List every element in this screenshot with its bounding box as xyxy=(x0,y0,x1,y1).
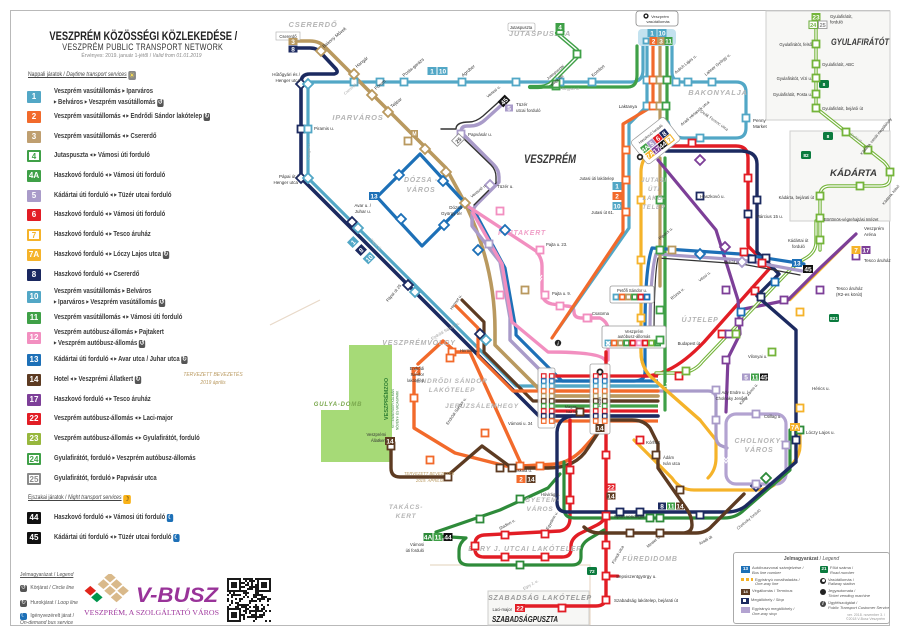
svg-text:Endrődi: Endrődi xyxy=(410,366,425,371)
svg-text:5: 5 xyxy=(507,106,511,113)
svg-text:CHOLNOKY-: CHOLNOKY- xyxy=(734,438,783,445)
svg-text:5: 5 xyxy=(744,375,748,382)
svg-text:Börtönös-végrehajtási Intézet: Börtönös-végrehajtási Intézet xyxy=(824,217,879,222)
svg-text:Gyulafirátót, Posta u.: Gyulafirátót, Posta u. xyxy=(773,92,812,97)
svg-text:22: 22 xyxy=(607,485,615,492)
svg-text:TELEP: TELEP xyxy=(642,205,666,211)
svg-text:3: 3 xyxy=(291,39,295,46)
svg-text:Papvásár u.: Papvásár u. xyxy=(468,132,492,137)
svg-text:Market: Market xyxy=(753,124,768,129)
svg-text:Egry J. u.: Egry J. u. xyxy=(522,578,539,591)
svg-text:Vámosi: Vámosi xyxy=(410,542,424,547)
svg-text:45: 45 xyxy=(804,267,812,274)
svg-text:Veszprém: Veszprém xyxy=(864,226,884,231)
svg-text:7: 7 xyxy=(854,248,858,255)
svg-text:Egyetem u.: Egyetem u. xyxy=(545,510,559,530)
svg-text:Gyulafirátót, ABC: Gyulafirátót, ABC xyxy=(822,62,854,67)
svg-text:Fórum: Fórum xyxy=(373,78,386,90)
svg-text:821: 821 xyxy=(830,316,838,322)
svg-text:úti forduló: úti forduló xyxy=(406,548,425,553)
svg-text:Henger u.: Henger u. xyxy=(307,143,311,160)
svg-text:V-BUSZ: V-BUSZ xyxy=(136,584,219,607)
svg-text:VÁROS: VÁROS xyxy=(745,445,774,454)
svg-text:ház tér: ház tér xyxy=(566,409,579,414)
svg-text:14: 14 xyxy=(607,494,615,501)
svg-text:BAKONYALJA: BAKONYALJA xyxy=(688,88,748,97)
svg-text:3: 3 xyxy=(659,39,663,46)
svg-text:autóbusz-állomás: autóbusz-állomás xyxy=(618,334,651,339)
svg-text:2: 2 xyxy=(652,39,656,46)
svg-text:Penny: Penny xyxy=(753,118,767,123)
svg-text:ÚJTELEP: ÚJTELEP xyxy=(681,315,718,324)
svg-text:1: 1 xyxy=(430,69,434,76)
svg-text:1: 1 xyxy=(650,31,654,38)
svg-text:11: 11 xyxy=(752,375,759,382)
svg-text:22: 22 xyxy=(516,606,524,613)
svg-text:Jutaspuszta: Jutaspuszta xyxy=(510,25,533,30)
svg-text:GULYA-DOMB: GULYA-DOMB xyxy=(314,402,362,408)
svg-text:Lahner György u.: Lahner György u. xyxy=(703,52,731,77)
svg-text:Hérics u.: Hérics u. xyxy=(812,386,830,391)
svg-text:Henger utca: Henger utca xyxy=(273,180,298,185)
svg-text:Stadion u.: Stadion u. xyxy=(498,518,516,531)
svg-text:Házgyári út: Házgyári út xyxy=(560,87,580,91)
svg-text:11: 11 xyxy=(668,504,675,511)
svg-text:2019. ÁPRILIS: 2019. ÁPRILIS xyxy=(415,478,444,483)
svg-text:Pajta u. 23.: Pajta u. 23. xyxy=(546,242,567,247)
svg-text:1: 1 xyxy=(615,184,619,191)
svg-text:VESZPRÉM, A SZOLGÁLTATÓ VÁROS: VESZPRÉM, A SZOLGÁLTATÓ VÁROS xyxy=(84,607,219,617)
svg-text:VÁROS: VÁROS xyxy=(526,504,553,513)
svg-text:Csillag u.: Csillag u. xyxy=(764,414,781,419)
svg-text:4A: 4A xyxy=(424,535,433,542)
svg-text:SZABADSÁG LAKÓTELEP: SZABADSÁG LAKÓTELEP xyxy=(488,593,592,602)
svg-text:Hűtőgyári és /: Hűtőgyári és / xyxy=(272,72,301,77)
svg-text:M: M xyxy=(412,132,416,138)
svg-text:Kádárta, bejárati út: Kádárta, bejárati út xyxy=(779,195,815,200)
svg-text:Csatorna: Csatorna xyxy=(592,311,610,316)
svg-text:György tér: György tér xyxy=(441,211,463,216)
svg-text:EGRY J. UTCAI LAKÓTELEP: EGRY J. UTCAI LAKÓTELEP xyxy=(468,544,581,553)
svg-text:Vámosi u. 34: Vámosi u. 34 xyxy=(508,421,533,426)
svg-text:Aradi út: Aradi út xyxy=(698,534,714,546)
svg-text:Mester u.: Mester u. xyxy=(645,534,661,549)
svg-text:VÁROS: VÁROS xyxy=(407,185,436,194)
svg-text:CSERERDŐ: CSERERDŐ xyxy=(289,20,338,29)
svg-text:10: 10 xyxy=(439,69,447,76)
svg-text:KÁDÁRTA: KÁDÁRTA xyxy=(830,168,877,179)
svg-text:Sándor: Sándor xyxy=(410,372,424,377)
svg-text:Petőfi Sándor u.: Petőfi Sándor u. xyxy=(617,288,647,293)
svg-text:14: 14 xyxy=(596,426,604,433)
svg-text:ÚTI: ÚTI xyxy=(648,186,660,193)
svg-text:8: 8 xyxy=(827,134,830,140)
svg-text:Órhíd u.: Órhíd u. xyxy=(724,259,740,265)
svg-text:7A: 7A xyxy=(791,425,800,432)
svg-text:lakótelep: lakótelep xyxy=(407,378,424,383)
svg-text:10: 10 xyxy=(613,204,621,211)
svg-text:Posta-garázs: Posta-garázs xyxy=(401,56,425,77)
svg-text:72: 72 xyxy=(589,569,595,575)
svg-text:8: 8 xyxy=(823,82,826,88)
svg-text:Budapest út: Budapest út xyxy=(678,341,701,346)
svg-text:Vécsi u.: Vécsi u. xyxy=(697,270,711,283)
svg-text:Vertesi u.: Vertesi u. xyxy=(485,84,501,99)
svg-text:Tejipar: Tejipar xyxy=(389,96,403,109)
svg-text:Kádártai út: Kádártai út xyxy=(788,238,809,243)
svg-text:JUTASI: JUTASI xyxy=(641,178,667,184)
svg-text:Állatkert: Állatkert xyxy=(371,438,387,443)
svg-text:Haszkovó u.: Haszkovó u. xyxy=(700,194,725,199)
svg-text:Tesco áruház: Tesco áruház xyxy=(864,258,892,263)
svg-text:45: 45 xyxy=(760,375,768,382)
svg-text:4: 4 xyxy=(558,25,562,32)
svg-text:Piramis u.: Piramis u. xyxy=(314,126,334,131)
svg-text:Tüzér u.: Tüzér u. xyxy=(497,184,514,189)
svg-text:utcai forduló: utcai forduló xyxy=(516,108,541,113)
svg-text:13: 13 xyxy=(793,261,801,268)
svg-text:14: 14 xyxy=(386,439,394,446)
svg-text:25: 25 xyxy=(820,23,826,29)
svg-text:11: 11 xyxy=(665,39,672,46)
svg-text:8: 8 xyxy=(660,504,664,511)
svg-text:Hangár: Hangár xyxy=(354,55,369,69)
svg-text:14: 14 xyxy=(527,477,535,484)
svg-text:Dózsa: Dózsa xyxy=(449,205,462,210)
svg-text:Endrődi Sándor u.: Endrődi Sándor u. xyxy=(445,396,468,425)
svg-text:Szabadság lakótelep, bejárati: Szabadság lakótelep, bejárati út xyxy=(614,598,679,603)
svg-text:Jutasi út 61.: Jutasi út 61. xyxy=(591,210,614,215)
svg-text:13: 13 xyxy=(370,194,378,201)
svg-text:Veszprémi: Veszprémi xyxy=(366,432,386,437)
svg-text:forduló: forduló xyxy=(792,244,805,249)
svg-text:Deák Ferenc utca: Deák Ferenc utca xyxy=(699,109,729,132)
svg-text:ENDRŐDI SÁNDOR: ENDRŐDI SÁNDOR xyxy=(416,376,487,385)
svg-text:Gyulafirátót, bejárói út: Gyulafirátót, bejárói út xyxy=(822,106,864,111)
svg-text:TAKÁCS-: TAKÁCS- xyxy=(389,502,423,511)
svg-text:IPARVÁROS: IPARVÁROS xyxy=(332,113,383,122)
svg-text:24: 24 xyxy=(810,23,817,29)
svg-text:Pajta u. 9.: Pajta u. 9. xyxy=(552,291,571,296)
svg-text:Laci-major: Laci-major xyxy=(492,607,512,612)
svg-text:TERVEZETT BEVEZETÉS: TERVEZETT BEVEZETÉS xyxy=(404,471,454,476)
svg-text:Vilonyai u.: Vilonyai u. xyxy=(748,354,767,359)
svg-text:Pápai út /: Pápai út / xyxy=(279,174,299,179)
svg-text:Sepsiszentgyörgy u.: Sepsiszentgyörgy u. xyxy=(616,574,657,579)
svg-text:2: 2 xyxy=(615,194,619,201)
svg-text:forduló: forduló xyxy=(830,20,843,25)
svg-text:Gyulafirátót,: Gyulafirátót, xyxy=(830,14,853,19)
svg-text:Aréna: Aréna xyxy=(864,232,877,237)
svg-text:Ádám: Ádám xyxy=(663,455,674,460)
svg-text:GYULAFIRÁTÓT: GYULAFIRÁTÓT xyxy=(831,36,890,48)
svg-text:KITTENBERGER KÁLMÁN: KITTENBERGER KÁLMÁN xyxy=(391,389,395,428)
svg-text:VESZPRÉMVÖLGY: VESZPRÉMVÖLGY xyxy=(382,338,456,347)
svg-text:Henger utca: Henger utca xyxy=(275,78,300,83)
svg-text:17: 17 xyxy=(862,248,870,255)
svg-text:Laktanya: Laktanya xyxy=(619,104,638,109)
svg-text:VESZPRÉMZOO: VESZPRÉMZOO xyxy=(382,377,390,420)
svg-text:vasútállomás: vasútállomás xyxy=(646,19,669,24)
svg-text:Tesco áruház: Tesco áruház xyxy=(836,286,864,291)
svg-text:Pápai út 25: Pápai út 25 xyxy=(385,283,403,303)
svg-text:EGYETEM-: EGYETEM- xyxy=(520,497,560,504)
svg-text:Gyulafirátót, Vízi u.: Gyulafirátót, Vízi u. xyxy=(777,76,812,81)
svg-text:VESZPRÉM: VESZPRÉM xyxy=(524,151,577,166)
svg-text:Sport vendéglő: Sport vendéglő xyxy=(614,514,645,519)
svg-text:NÖVÉNY- ÉS VADASPARK: NÖVÉNY- ÉS VADASPARK xyxy=(395,390,400,430)
svg-text:Gyulafirátót, felső: Gyulafirátót, felső xyxy=(779,42,812,47)
svg-text:2: 2 xyxy=(519,477,523,484)
svg-text:FÜREDIDOMB: FÜREDIDOMB xyxy=(622,554,677,563)
svg-text:DÓZSA -: DÓZSA - xyxy=(404,175,438,184)
svg-text:Komfort: Komfort xyxy=(590,63,606,77)
svg-text:Rózsa u.: Rózsa u. xyxy=(669,286,685,300)
svg-text:82: 82 xyxy=(803,153,809,159)
svg-text:11: 11 xyxy=(435,535,442,542)
svg-text:(R2-es körút): (R2-es körút) xyxy=(836,292,863,297)
svg-text:Jutasi úti lakótelep: Jutasi úti lakótelep xyxy=(580,176,615,181)
svg-text:Agrober: Agrober xyxy=(460,63,476,77)
svg-text:8: 8 xyxy=(291,47,295,54)
svg-text:Lóczy Lajos u.: Lóczy Lajos u. xyxy=(806,430,835,435)
svg-text:SZABADSÁGPUSZTA: SZABADSÁGPUSZTA xyxy=(492,614,558,624)
svg-text:Aulich Lajos u.: Aulich Lajos u. xyxy=(673,53,697,74)
svg-text:44: 44 xyxy=(444,535,452,542)
svg-text:10: 10 xyxy=(658,31,666,38)
svg-text:Hóvirág u.: Hóvirág u. xyxy=(541,492,560,497)
svg-text:Kórház: Kórház xyxy=(646,440,661,445)
svg-text:14: 14 xyxy=(676,504,684,511)
svg-text:LAKÓTELEP: LAKÓTELEP xyxy=(429,385,476,394)
svg-text:LAKÓ-: LAKÓ- xyxy=(643,195,666,202)
svg-text:Március 15 u.: Március 15 u. xyxy=(756,214,783,219)
svg-text:Juhar u.: Juhar u. xyxy=(355,209,371,214)
svg-text:Hermet u.: Hermet u. xyxy=(460,348,478,353)
svg-text:Iván utca: Iván utca xyxy=(663,461,681,466)
svg-text:Iskola u.: Iskola u. xyxy=(516,468,532,473)
svg-text:KERT: KERT xyxy=(396,513,417,520)
svg-text:Tüzér: Tüzér xyxy=(516,102,528,107)
svg-text:Avar u. /: Avar u. / xyxy=(354,203,371,208)
